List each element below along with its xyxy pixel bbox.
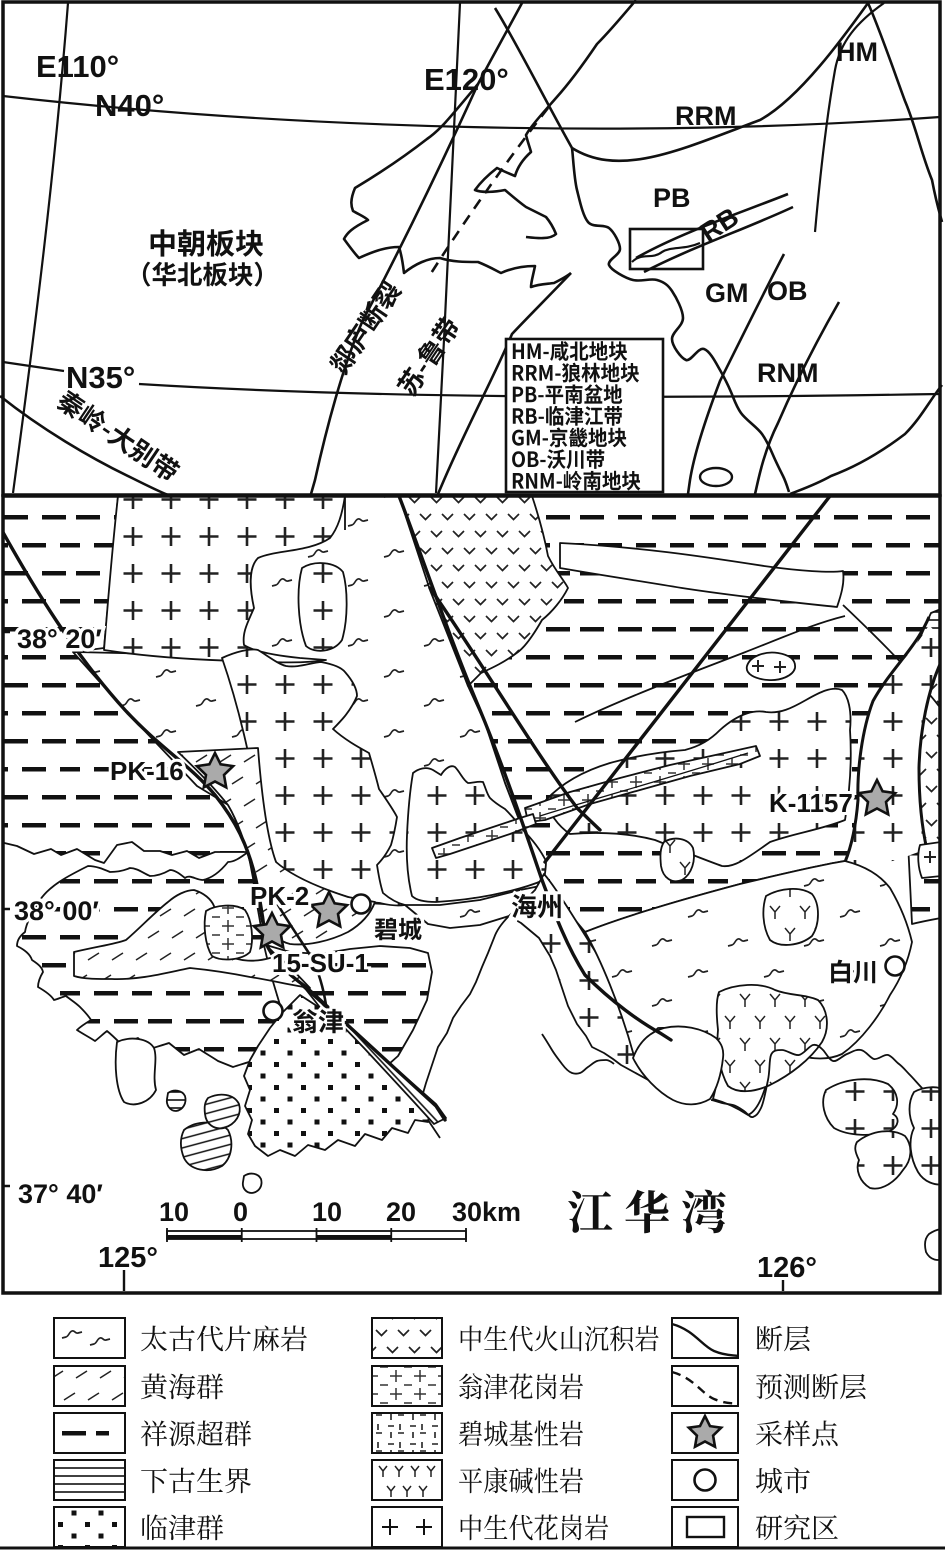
svg-text:GM: GM [705,278,749,308]
svg-text:N35°: N35° [66,360,135,395]
svg-text:15-SU-1: 15-SU-1 [272,948,369,978]
svg-text:E120°: E120° [424,62,509,97]
svg-text:PB: PB [653,183,691,213]
svg-text:125°: 125° [98,1242,158,1274]
svg-text:38° 20′: 38° 20′ [17,624,102,654]
svg-text:HM: HM [836,37,878,67]
svg-text:126°: 126° [757,1252,817,1284]
svg-text:K-1157: K-1157 [769,788,853,818]
svg-text:10: 10 [159,1197,189,1227]
svg-text:PK-16: PK-16 [110,756,184,786]
svg-text:N40°: N40° [95,88,164,123]
svg-text:30km: 30km [452,1197,521,1227]
svg-text:OB: OB [767,276,808,306]
svg-text:RRM: RRM [675,101,737,131]
svg-text:10: 10 [312,1197,342,1227]
svg-text:E110°: E110° [36,49,119,84]
svg-text:0: 0 [233,1197,248,1227]
svg-text:PK-2: PK-2 [250,881,309,911]
svg-text:20: 20 [386,1197,416,1227]
svg-text:37° 40′: 37° 40′ [18,1179,103,1209]
svg-text:38° 00′: 38° 00′ [14,896,99,926]
svg-text:RNM: RNM [757,358,819,388]
